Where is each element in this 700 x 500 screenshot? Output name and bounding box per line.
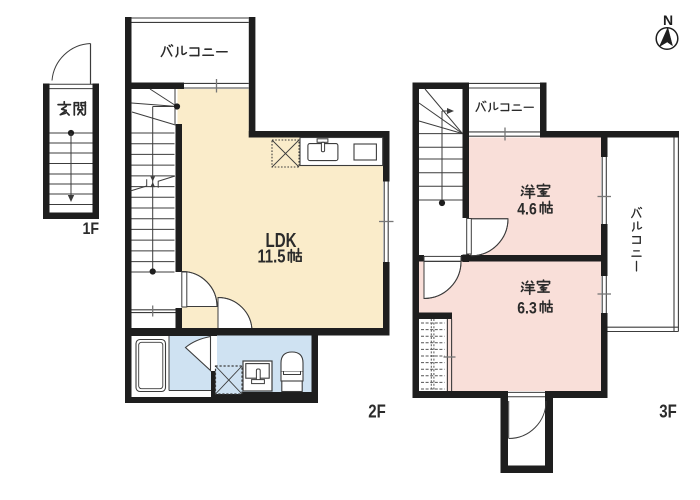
- svg-text:3F: 3F: [659, 401, 677, 422]
- svg-text:6.3: 6.3: [517, 300, 537, 318]
- svg-text:2F: 2F: [368, 401, 386, 422]
- svg-text:1F: 1F: [83, 219, 100, 238]
- svg-text:4.6: 4.6: [517, 201, 537, 219]
- svg-text:11.5: 11.5: [258, 246, 286, 267]
- svg-text:N: N: [663, 12, 673, 28]
